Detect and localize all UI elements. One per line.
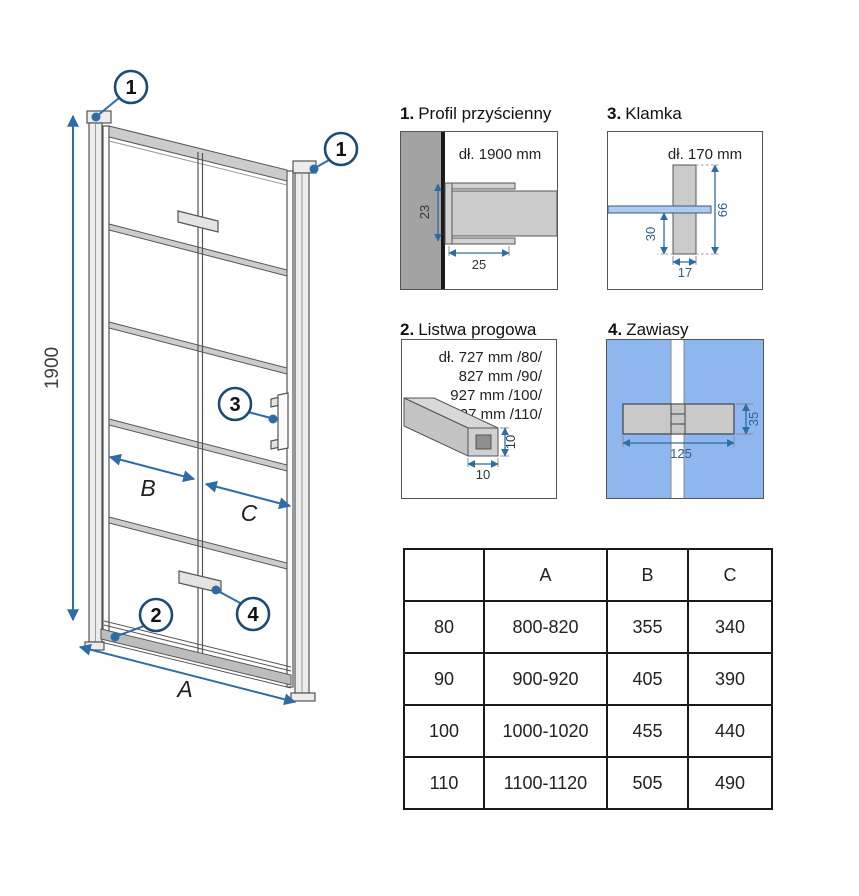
callout-hinge: 4	[212, 586, 270, 631]
detail-1-number: 1.	[400, 104, 414, 123]
cell-size: 110	[404, 757, 484, 809]
callout-wall-profile-left: 1	[92, 71, 148, 122]
cell-a: 800-820	[484, 601, 607, 653]
header-b: B	[607, 549, 688, 601]
detail-2-title: 2.Listwa progowa	[400, 320, 536, 340]
table-row: 100 1000-1020 455 440	[404, 705, 772, 757]
right-wall-profile	[287, 161, 316, 701]
header-size	[404, 549, 484, 601]
size-table: A B C 80 800-820 355 340 90 900-920 405 …	[403, 548, 773, 810]
cell-c: 340	[688, 601, 772, 653]
detail-2-length-90: 827 mm /90/	[459, 368, 543, 385]
dimension-c: C	[206, 484, 290, 526]
callout-2-number: 2	[150, 605, 161, 627]
detail-2-label: Listwa progowa	[418, 320, 536, 339]
cell-c: 390	[688, 653, 772, 705]
detail-1-title: 1.Profil przyścienny	[400, 104, 551, 124]
detail-3-label: Klamka	[625, 104, 682, 123]
cell-a: 1100-1120	[484, 757, 607, 809]
glass-panel	[452, 191, 557, 236]
table-row: 90 900-920 405 390	[404, 653, 772, 705]
detail-4-drawing: 125 35	[607, 340, 763, 498]
wall-edge	[441, 132, 445, 289]
callout-wall-profile-right: 1	[310, 133, 358, 174]
detail-1-length: dł. 1900 mm	[459, 146, 542, 163]
detail-1-panel: dł. 1900 mm 23 25	[400, 131, 558, 290]
profile-bottom-flange	[445, 238, 515, 244]
callout-3-number: 3	[229, 394, 240, 416]
detail-4-label: Zawiasy	[626, 320, 688, 339]
table-row: 110 1100-1120 505 490	[404, 757, 772, 809]
cell-a: 900-920	[484, 653, 607, 705]
detail-3-dim-17: 17	[678, 265, 692, 280]
b-label: B	[140, 475, 155, 501]
detail-3-dim-30: 30	[643, 227, 658, 241]
profile-top-flange	[445, 183, 515, 189]
callout-1-right-number: 1	[335, 139, 346, 161]
cell-size: 80	[404, 601, 484, 653]
detail-2-length-100: 927 mm /100/	[450, 387, 543, 404]
detail-1-dim-23: 23	[417, 205, 432, 219]
detail-4-title: 4.Zawiasy	[608, 320, 689, 340]
detail-3-number: 3.	[607, 104, 621, 123]
shower-door-spec-sheet: 1900 B C A 1 1	[0, 0, 859, 896]
glass-strip	[608, 206, 711, 213]
dimension-height: 1900	[42, 116, 73, 620]
detail-1-label: Profil przyścienny	[418, 104, 551, 123]
tube-bore	[476, 435, 491, 449]
dimension-b: B	[110, 457, 194, 501]
detail-4-number: 4.	[608, 320, 622, 339]
detail-1-drawing: dł. 1900 mm 23 25	[401, 132, 557, 289]
cell-c: 490	[688, 757, 772, 809]
cell-b: 455	[607, 705, 688, 757]
detail-3-title: 3.Klamka	[607, 104, 682, 124]
detail-2-dim-h: 10	[503, 435, 518, 449]
detail-2-panel: dł. 727 mm /80/ 827 mm /90/ 927 mm /100/…	[401, 339, 557, 499]
profile-web	[445, 183, 452, 244]
detail-2-drawing: dł. 727 mm /80/ 827 mm /90/ 927 mm /100/…	[402, 340, 556, 498]
detail-2-number: 2.	[400, 320, 414, 339]
a-label: A	[175, 676, 192, 702]
header-c: C	[688, 549, 772, 601]
detail-3-drawing: dł. 170 mm 66 30 17	[608, 132, 762, 289]
detail-3-panel: dł. 170 mm 66 30 17	[607, 131, 763, 290]
callout-1-left-number: 1	[125, 77, 136, 99]
cell-a: 1000-1020	[484, 705, 607, 757]
detail-2-dim-w: 10	[476, 467, 490, 482]
detail-4-dim-125: 125	[670, 446, 692, 461]
table-header-row: A B C	[404, 549, 772, 601]
table-row: 80 800-820 355 340	[404, 601, 772, 653]
detail-4-dim-35: 35	[746, 412, 761, 426]
callout-handle: 3	[219, 388, 278, 424]
left-wall-profile	[85, 111, 111, 650]
header-a: A	[484, 549, 607, 601]
detail-4-panel: 125 35	[606, 339, 764, 499]
height-value: 1900	[42, 347, 63, 389]
c-label: C	[241, 500, 258, 526]
cell-size: 90	[404, 653, 484, 705]
cell-b: 505	[607, 757, 688, 809]
callout-4-number: 4	[247, 604, 259, 626]
detail-2-length-80: dł. 727 mm /80/	[439, 349, 543, 366]
hinge-knuckle	[671, 404, 685, 434]
cell-b: 355	[607, 601, 688, 653]
detail-1-dim-25: 25	[472, 257, 486, 272]
detail-3-dim-66: 66	[715, 203, 730, 217]
cell-c: 440	[688, 705, 772, 757]
hinge-plates	[178, 211, 221, 593]
cell-b: 405	[607, 653, 688, 705]
cell-size: 100	[404, 705, 484, 757]
detail-3-length: dł. 170 mm	[668, 146, 742, 163]
